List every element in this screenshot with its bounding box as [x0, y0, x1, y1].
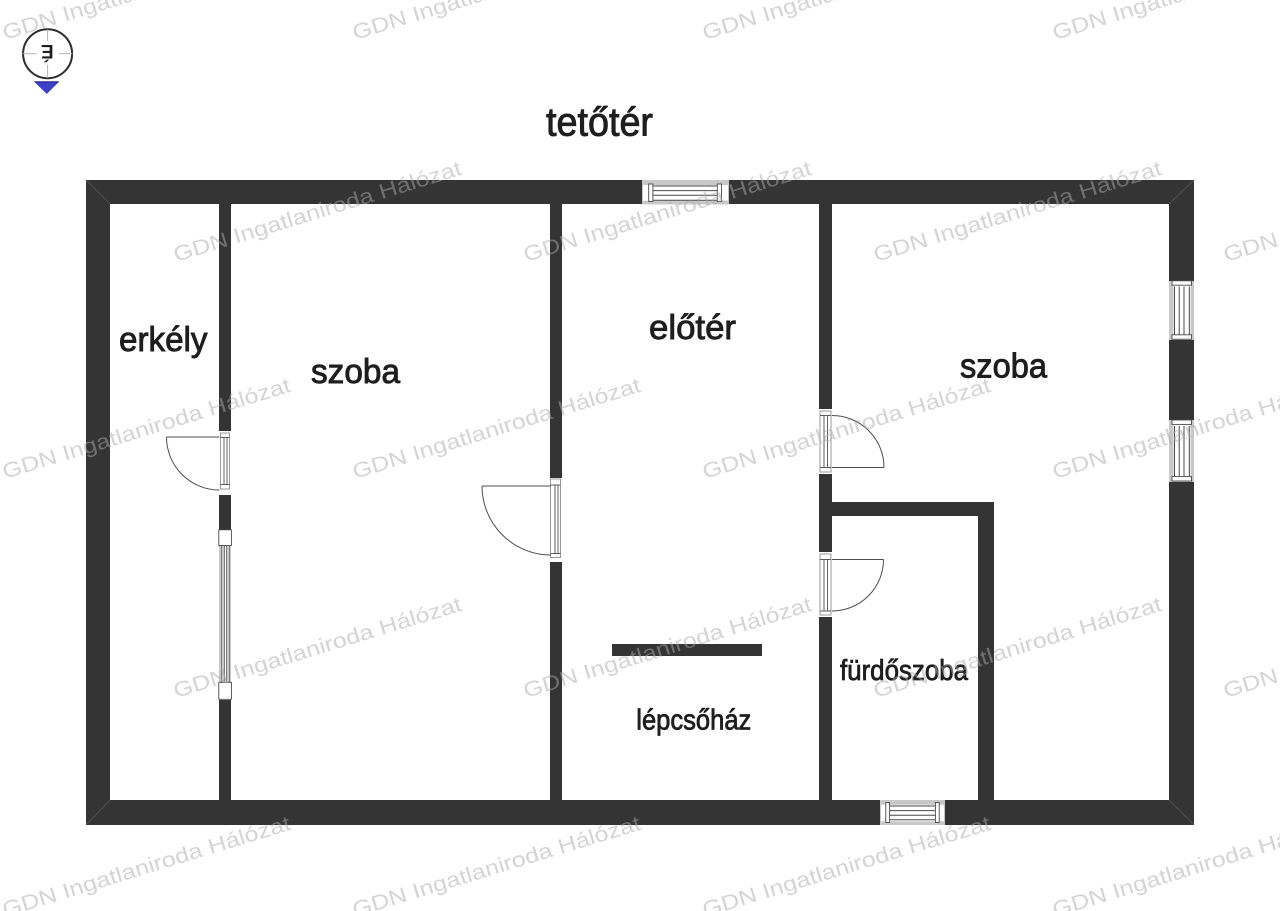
svg-text:szoba: szoba	[311, 353, 401, 391]
svg-text:előtér: előtér	[649, 309, 736, 347]
svg-text:erkély: erkély	[119, 321, 208, 359]
svg-text:É: É	[41, 40, 54, 62]
svg-text:lépcsőház: lépcsőház	[636, 705, 751, 737]
svg-text:tetőtér: tetőtér	[546, 101, 653, 145]
